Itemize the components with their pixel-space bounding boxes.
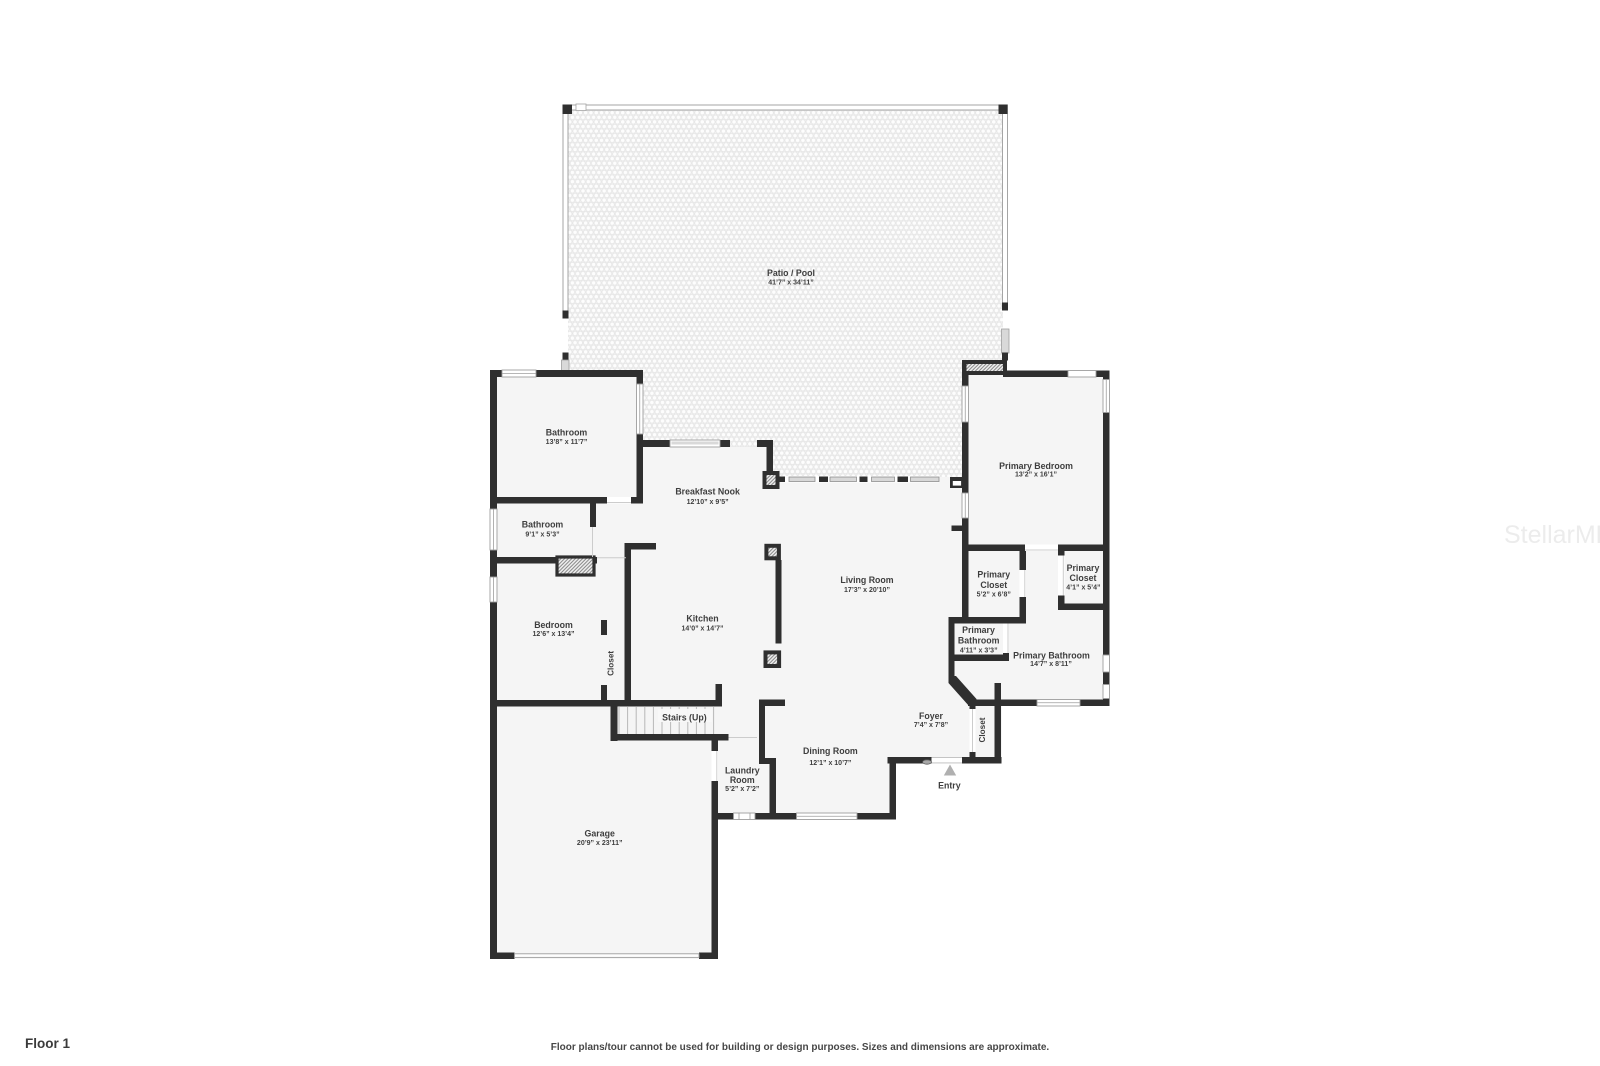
- svg-text:Dining Room: Dining Room: [803, 746, 858, 756]
- svg-text:Floor 1: Floor 1: [25, 1036, 70, 1051]
- svg-text:Primary Bedroom: Primary Bedroom: [999, 461, 1073, 471]
- svg-text:Kitchen: Kitchen: [686, 613, 718, 623]
- svg-text:Stairs (Up): Stairs (Up): [662, 712, 707, 722]
- svg-text:Bathroom: Bathroom: [522, 520, 564, 530]
- svg-text:4’11” x 3’3”: 4’11” x 3’3”: [960, 647, 998, 654]
- svg-text:14’7” x 8’11”: 14’7” x 8’11”: [1030, 661, 1072, 668]
- svg-text:13’2” x 16’1”: 13’2” x 16’1”: [1015, 471, 1057, 478]
- svg-text:Room: Room: [730, 775, 755, 785]
- svg-text:12’6” x 13’4”: 12’6” x 13’4”: [532, 631, 574, 638]
- svg-text:20’9” x 23’11”: 20’9” x 23’11”: [577, 840, 623, 847]
- svg-text:12’1” x 10’7”: 12’1” x 10’7”: [809, 760, 851, 767]
- svg-text:5’2” x 7’2”: 5’2” x 7’2”: [725, 786, 759, 793]
- svg-text:9’1” x 5’3”: 9’1” x 5’3”: [525, 532, 559, 539]
- svg-text:Primary: Primary: [1067, 563, 1100, 573]
- svg-text:5’2” x 6’8”: 5’2” x 6’8”: [977, 591, 1011, 598]
- svg-text:17’3” x 20’10”: 17’3” x 20’10”: [844, 587, 890, 594]
- svg-text:41’7” x 34’11”: 41’7” x 34’11”: [768, 279, 814, 286]
- svg-text:4’1” x 5’4”: 4’1” x 5’4”: [1066, 584, 1100, 591]
- svg-text:StellarMLS: StellarMLS: [1504, 521, 1600, 549]
- svg-text:12’10” x 9’5”: 12’10” x 9’5”: [687, 499, 729, 506]
- svg-text:Bedroom: Bedroom: [534, 620, 573, 630]
- svg-text:Closet: Closet: [978, 717, 987, 742]
- svg-text:Patio / Pool: Patio / Pool: [767, 268, 815, 278]
- svg-text:Floor plans/tour cannot be use: Floor plans/tour cannot be used for buil…: [551, 1042, 1050, 1053]
- svg-text:Primary Bathroom: Primary Bathroom: [1013, 650, 1090, 660]
- svg-text:Primary: Primary: [962, 625, 995, 635]
- svg-text:Closet: Closet: [980, 580, 1007, 590]
- svg-text:Closet: Closet: [607, 651, 616, 676]
- svg-text:Laundry: Laundry: [725, 765, 760, 775]
- svg-text:13’8” x 11’7”: 13’8” x 11’7”: [546, 439, 588, 446]
- svg-text:Breakfast Nook: Breakfast Nook: [675, 487, 740, 497]
- svg-text:Foyer: Foyer: [919, 711, 944, 721]
- svg-text:7’4” x 7’8”: 7’4” x 7’8”: [914, 722, 948, 729]
- svg-text:Primary: Primary: [977, 569, 1010, 579]
- svg-text:Bathroom: Bathroom: [546, 428, 588, 438]
- svg-text:Bathroom: Bathroom: [958, 636, 1000, 646]
- svg-text:Entry: Entry: [938, 780, 961, 790]
- svg-text:14’0” x 14’7”: 14’0” x 14’7”: [681, 625, 723, 632]
- svg-text:Garage: Garage: [585, 828, 615, 838]
- svg-text:Closet: Closet: [1070, 573, 1097, 583]
- svg-text:Living Room: Living Room: [840, 575, 893, 585]
